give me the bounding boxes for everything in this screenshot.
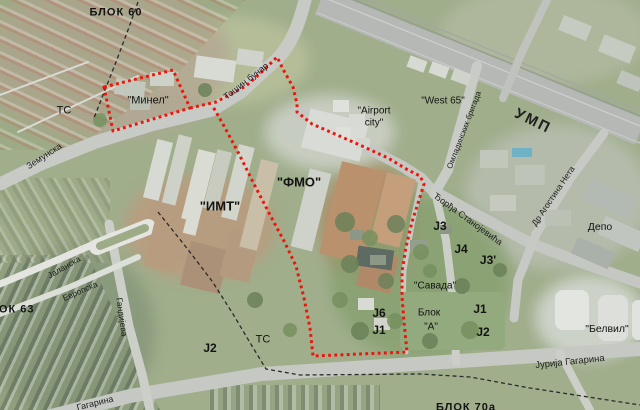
area-label-blok-63: БЛОК 63 xyxy=(0,304,34,317)
area-label-savada: "Савада" xyxy=(414,280,456,292)
area-label-j3-prim: J3' xyxy=(480,254,496,268)
area-label-j2-east: J2 xyxy=(476,326,489,340)
area-label-belvil: "Белвил" xyxy=(585,323,629,335)
area-label-blok-70a: БЛОК 70а xyxy=(436,402,496,410)
area-label-ts-south: ТС xyxy=(256,334,271,347)
area-label-j3: J3 xyxy=(433,220,446,234)
area-label-minel: "Минел" xyxy=(127,95,168,108)
road-gandijeva xyxy=(109,224,150,410)
map-canvas: БЛОК 60 ТС "Минел" "ИМТ" "ФМО" "Airport … xyxy=(0,0,640,410)
area-label-imt: "ИМТ" xyxy=(200,200,240,215)
road-omladinskih-brigada xyxy=(434,66,477,194)
area-label-blok-60: БЛОК 60 xyxy=(90,7,143,20)
area-label-j2-west: J2 xyxy=(203,342,216,356)
area-label-j4: J4 xyxy=(454,243,467,257)
area-label-depo: Депо xyxy=(588,221,612,233)
area-label-ts-north: ТС xyxy=(57,105,72,118)
area-label-j1-west: J1 xyxy=(372,324,385,338)
area-label-west-65: "West 65" xyxy=(421,95,465,107)
area-label-blok: Блок xyxy=(418,307,440,319)
area-label-airport-city: "Airport city" xyxy=(357,106,390,129)
area-label-j6: J6 xyxy=(372,307,385,321)
area-label-a: "А" xyxy=(424,321,438,333)
area-label-fmo: "ФМО" xyxy=(277,176,321,191)
area-label-j1-east: J1 xyxy=(473,303,486,317)
